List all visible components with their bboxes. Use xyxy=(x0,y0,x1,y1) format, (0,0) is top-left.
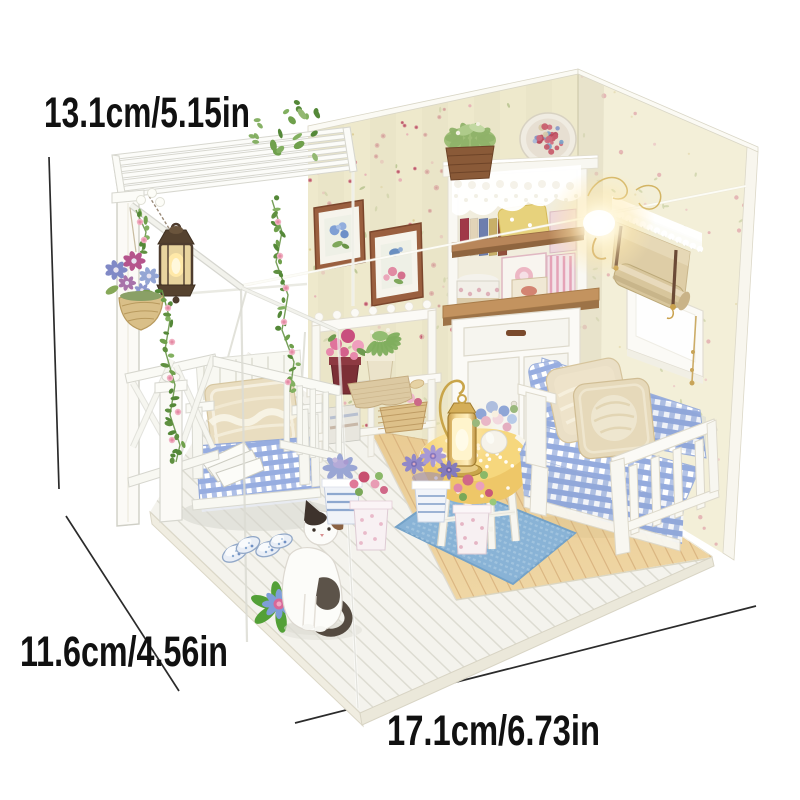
svg-text:17.1cm/6.73in: 17.1cm/6.73in xyxy=(387,707,600,755)
svg-text:13.1cm/5.15in: 13.1cm/5.15in xyxy=(44,89,250,137)
svg-text:11.6cm/4.56in: 11.6cm/4.56in xyxy=(20,628,228,676)
